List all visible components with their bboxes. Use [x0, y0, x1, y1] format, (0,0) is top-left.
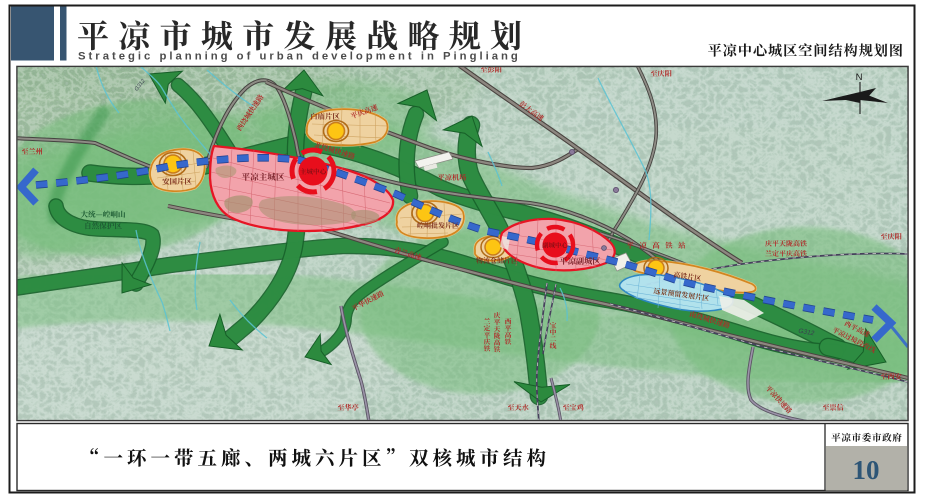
svg-text:N: N	[856, 72, 863, 83]
svg-text:10: 10	[853, 455, 880, 485]
svg-text:Strategic planning of urban de: Strategic planning of urban development …	[78, 51, 521, 63]
